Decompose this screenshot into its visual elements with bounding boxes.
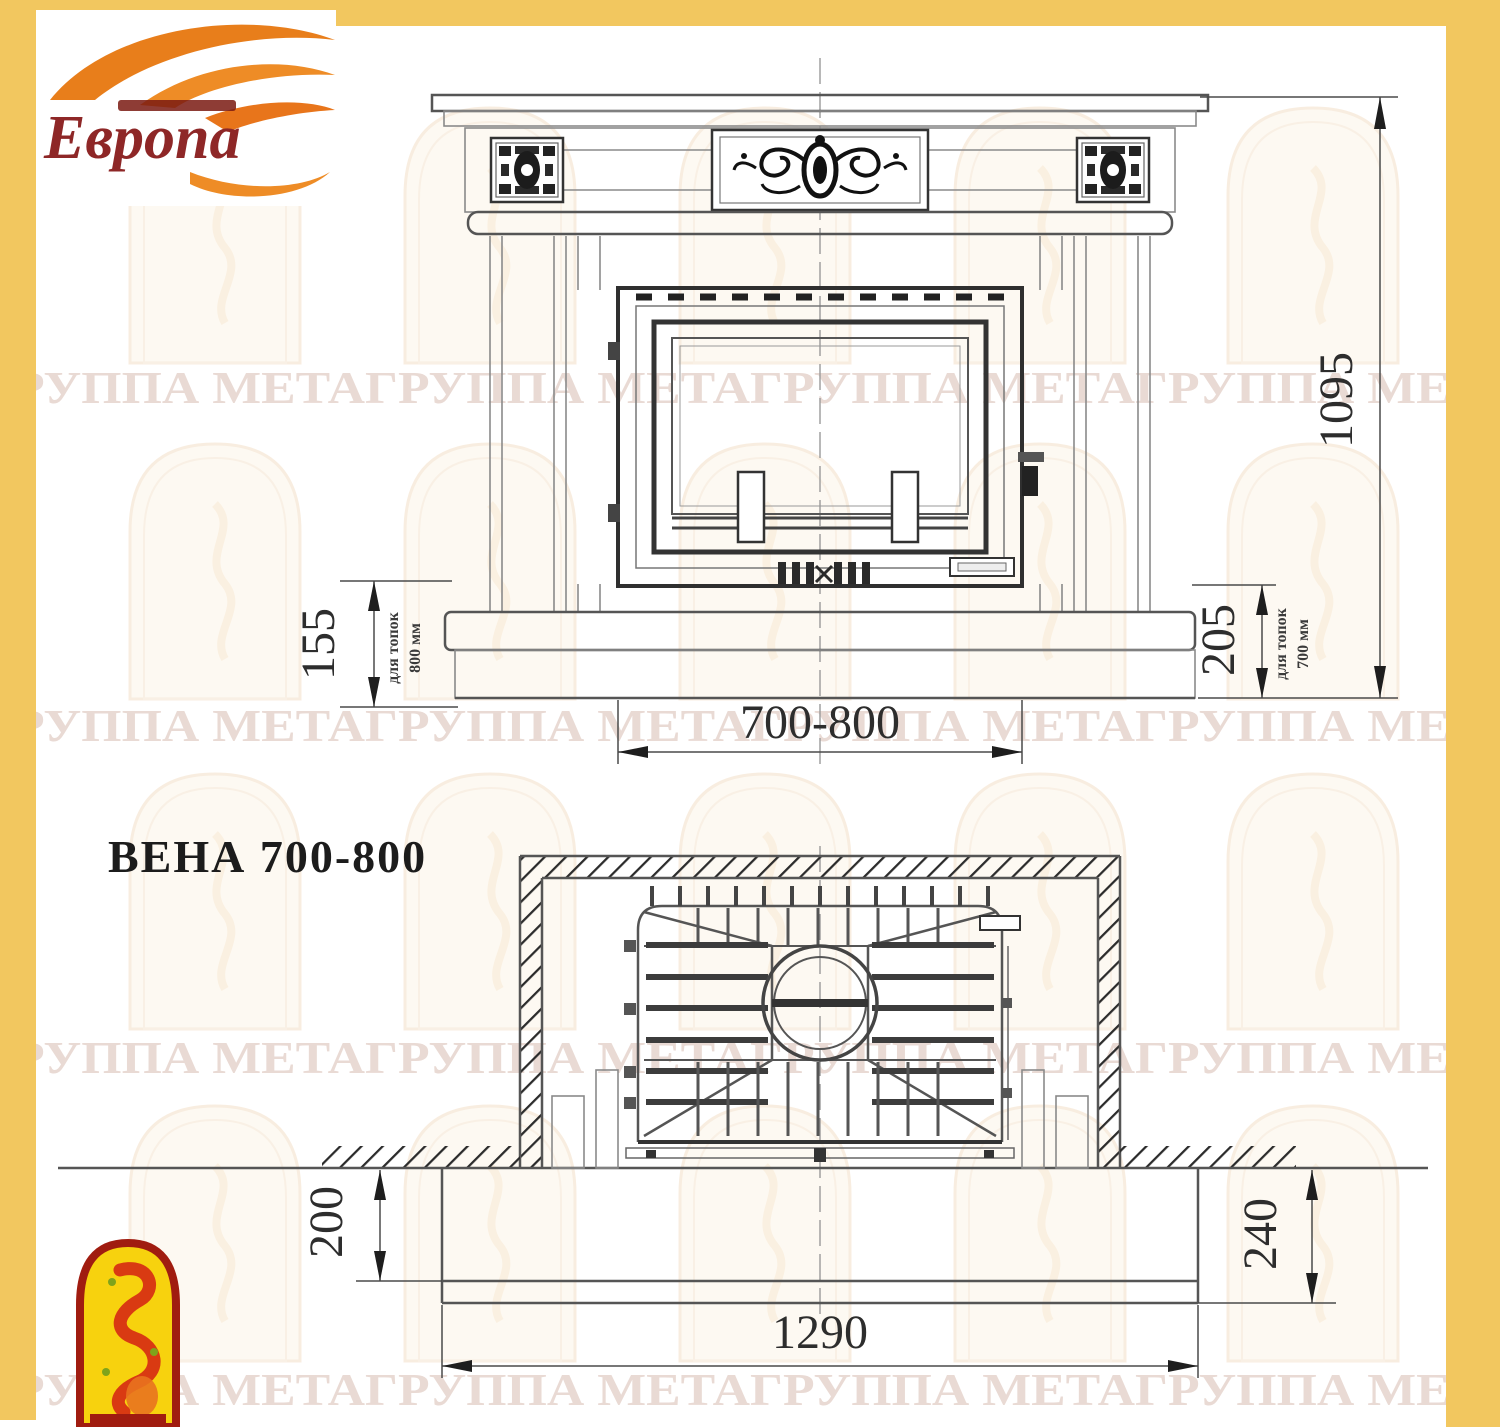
floor-hatch-left xyxy=(322,1146,520,1168)
dim-plinth-left-label: 155 xyxy=(292,608,345,680)
frame-left xyxy=(0,0,36,1420)
door-handle xyxy=(1018,452,1044,462)
andiron-left xyxy=(738,472,764,542)
watermark-row: ГРУППА МЕТАГРУППА МЕТАГРУППА МЕТАГРУППА … xyxy=(0,362,1500,413)
dim-opening-width-label: 700-800 xyxy=(740,696,900,749)
left-tabs xyxy=(624,940,636,1109)
watermark-row: ГРУППА МЕТАГРУППА МЕТАГРУППА МЕТАГРУППА … xyxy=(0,1364,1500,1415)
brand-logo: Европа xyxy=(36,10,336,206)
damper-handle-box xyxy=(980,916,1020,930)
dim-plinth-right-note-1: для топок xyxy=(1273,607,1290,680)
andiron-right xyxy=(892,472,918,542)
dim-plinth-right-note-2: 700 мм xyxy=(1295,619,1312,669)
group-emblem xyxy=(80,1243,176,1427)
hinge-bottom xyxy=(608,504,620,522)
brand-name: Европа xyxy=(43,104,241,172)
emblem-base xyxy=(90,1414,166,1427)
dim-hearth-right-label: 240 xyxy=(1234,1198,1287,1270)
hinge-top xyxy=(608,342,620,360)
fireplace-technical-drawing: ГРУППА МЕТАГРУППА МЕТАГРУППА МЕТАГРУППА … xyxy=(0,0,1500,1427)
dim-plinth-right-label: 205 xyxy=(1192,604,1245,676)
dim-plinth-left-note-2: 800 мм xyxy=(407,623,424,673)
dim-total-height-label: 1095 xyxy=(1310,352,1363,448)
dim-plinth-left-note-1: для топок xyxy=(385,611,402,684)
right-ornament-panel xyxy=(1077,138,1149,202)
dim-hearth-left-label: 200 xyxy=(300,1186,353,1258)
center-ornament-panel xyxy=(712,130,928,210)
left-ornament-panel xyxy=(491,138,563,202)
firebird-body xyxy=(126,1376,158,1416)
dim-hearth-width-label: 1290 xyxy=(772,1306,868,1359)
model-title: ВЕНА 700-800 xyxy=(108,831,427,882)
floor-hatch-right xyxy=(1120,1146,1296,1168)
frame-right xyxy=(1446,0,1500,1427)
